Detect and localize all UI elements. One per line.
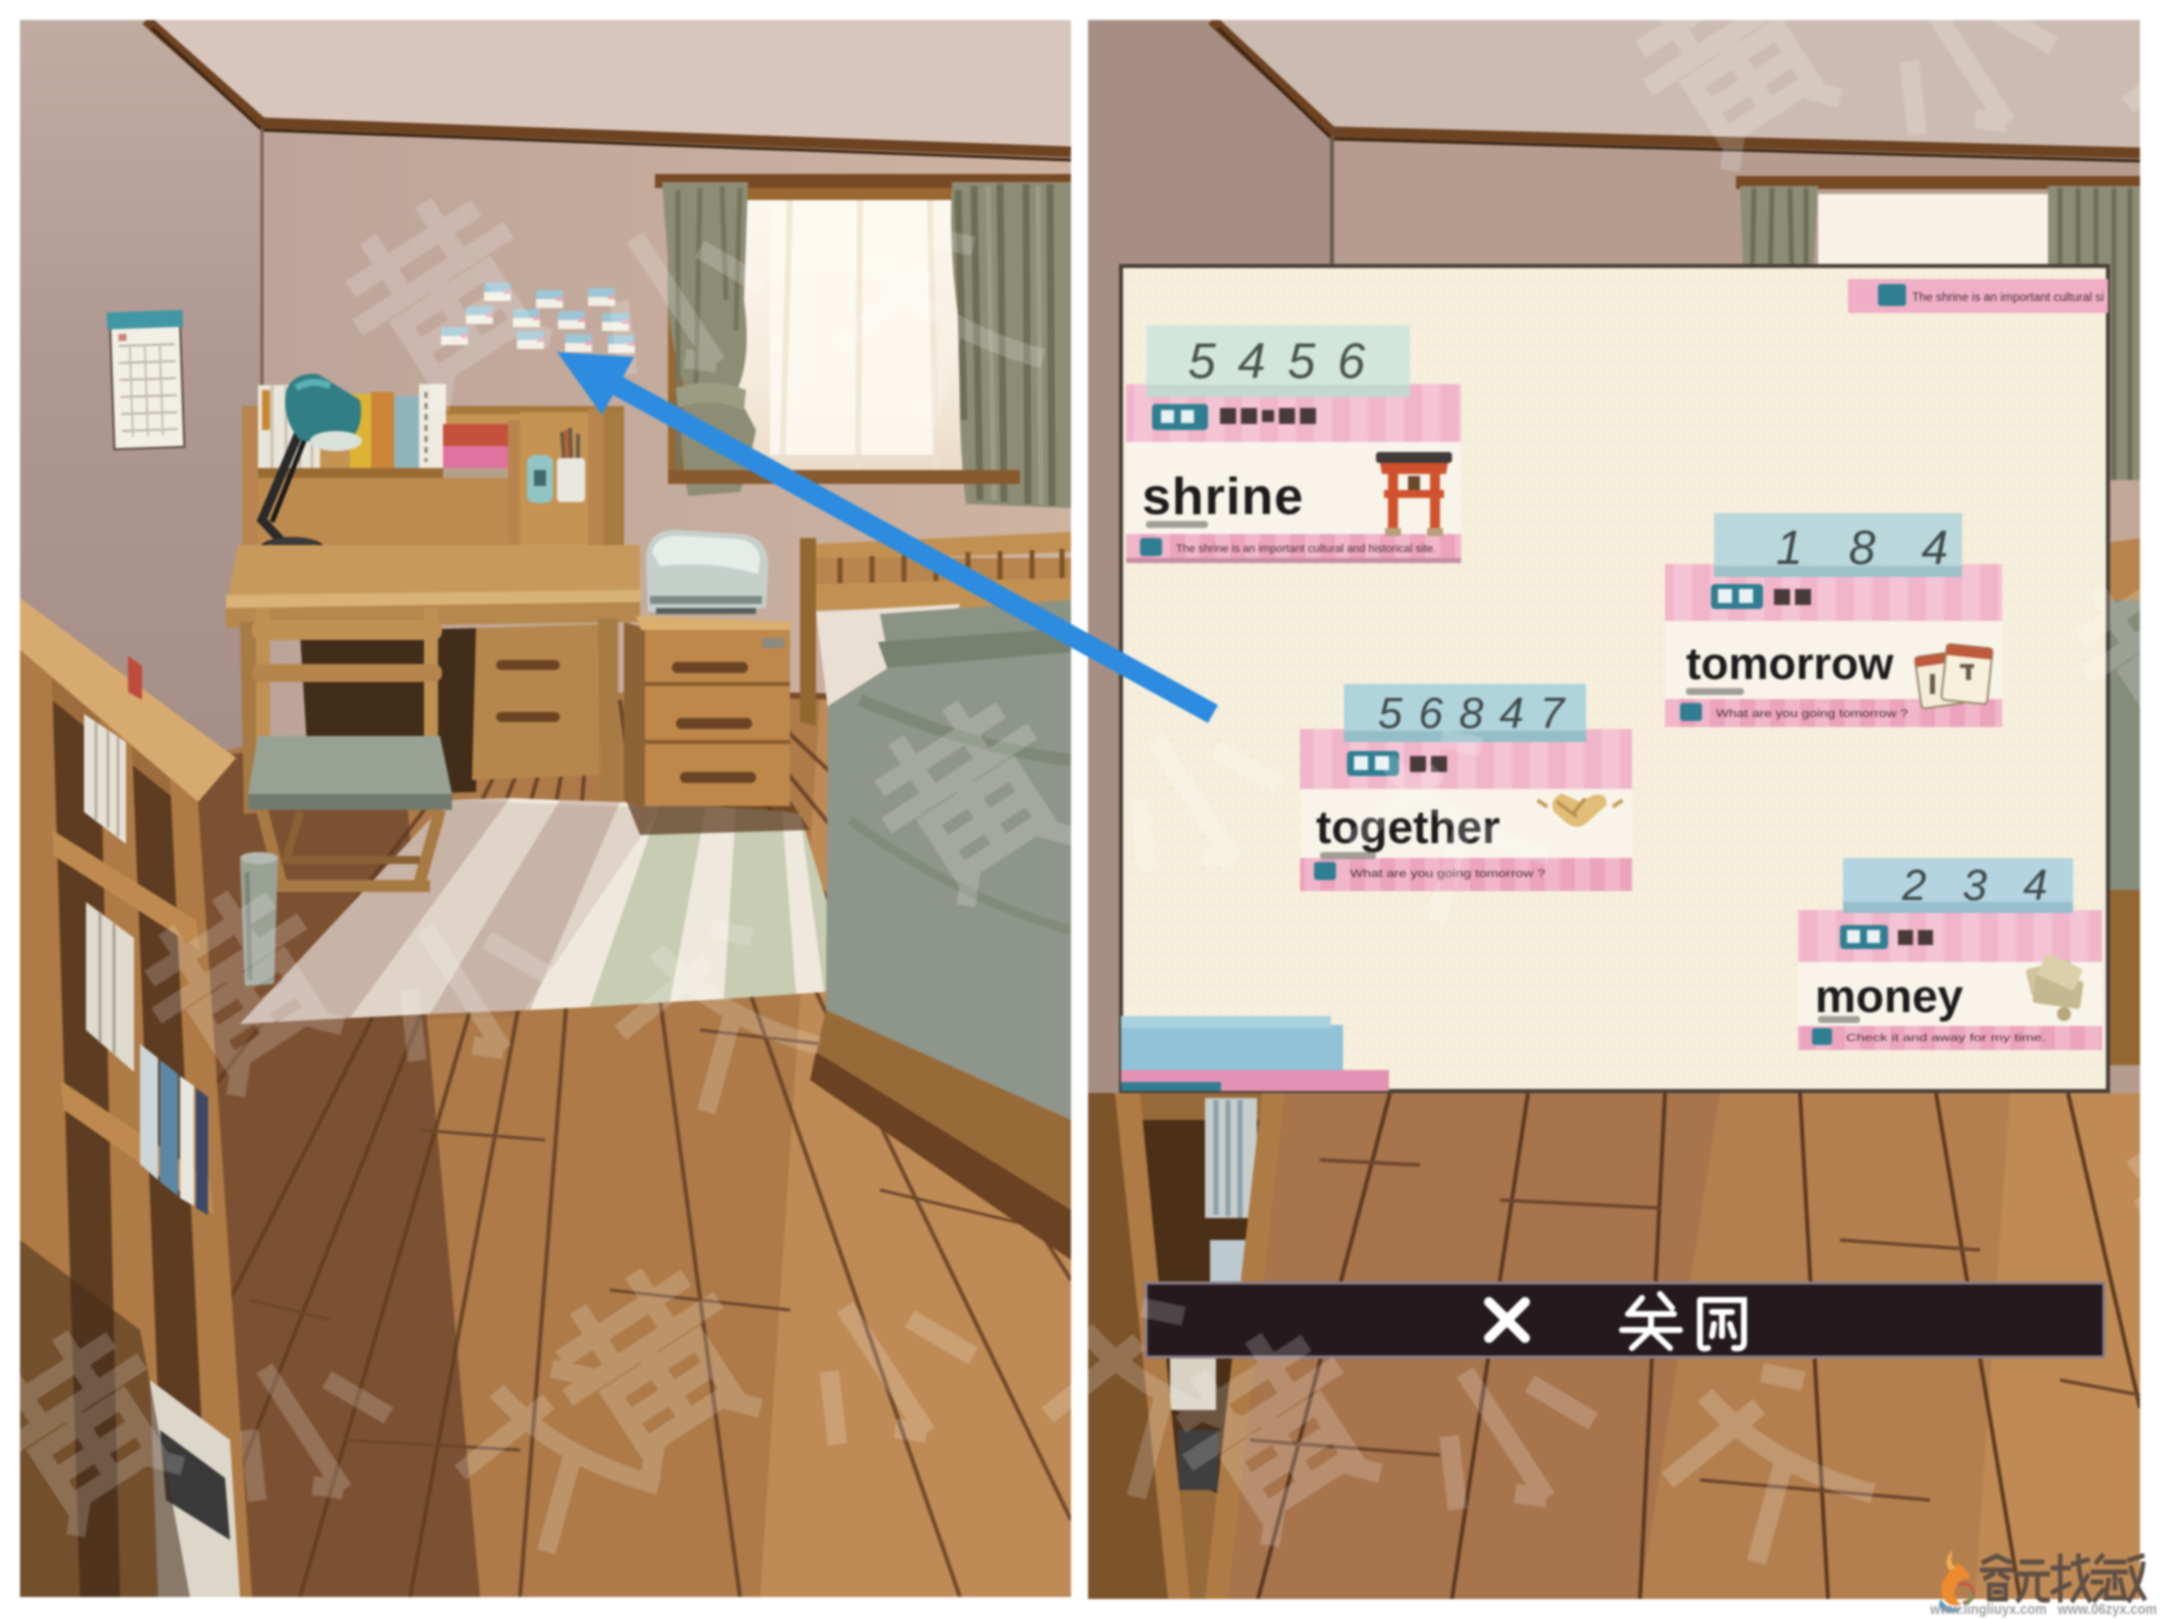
svg-text:What are you going tomorrow ?: What are you going tomorrow ? (1716, 708, 1908, 720)
svg-text:money: money (1815, 970, 1964, 1022)
svg-text:shrine: shrine (1142, 468, 1304, 526)
svg-text:234: 234 (1901, 861, 2083, 910)
svg-text:56847: 56847 (1378, 689, 1580, 738)
svg-text:Check it and away for my time.: Check it and away for my time. (1846, 1032, 2046, 1044)
svg-text:www.lingliuyx.com www.06zyx.: www.lingliuyx.com www.06zyx.com (1929, 1601, 2157, 1618)
svg-text:tomorrow: tomorrow (1686, 638, 1894, 689)
svg-text:5456: 5456 (1188, 333, 1387, 389)
svg-text:184: 184 (1776, 522, 1994, 575)
svg-text:The shrine is an important cul: The shrine is an important cultural si (1912, 292, 2104, 304)
svg-text:The shrine is an important cul: The shrine is an important cultural and … (1176, 543, 1436, 555)
